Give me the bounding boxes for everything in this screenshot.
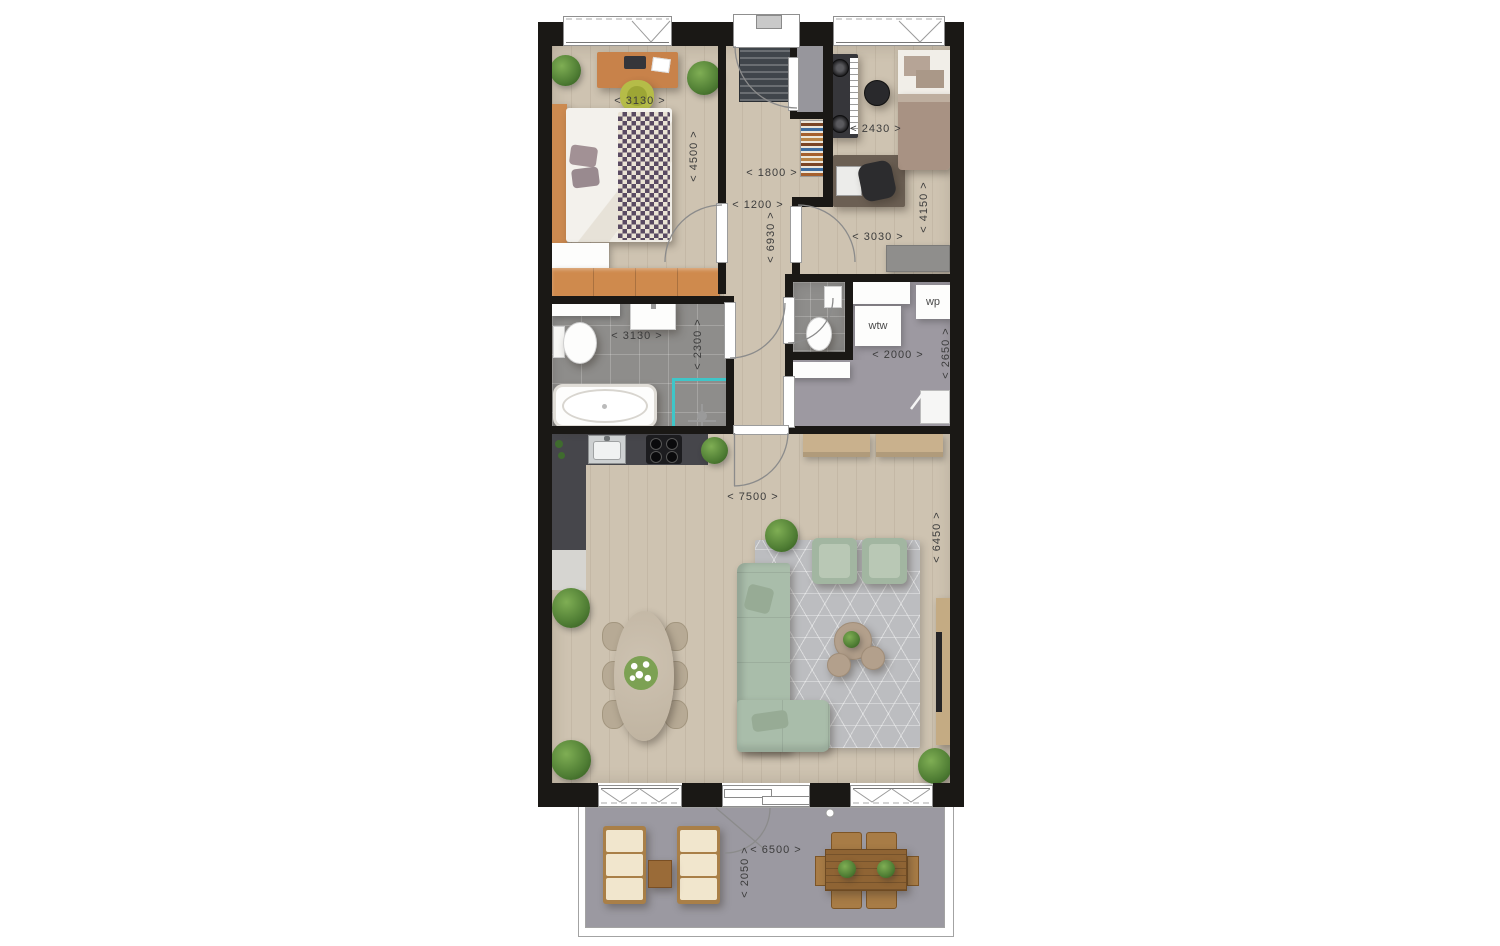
papers [651, 57, 671, 73]
kitchen-counter-side [552, 434, 586, 550]
wall [933, 783, 964, 807]
wall [945, 22, 964, 46]
dim-bedroom1-depth: < 4500 > [688, 130, 700, 181]
dim-living-width: < 7500 > [727, 491, 778, 503]
laptop [624, 56, 646, 69]
wall [810, 783, 850, 807]
wc-sink [824, 286, 842, 308]
window [563, 16, 672, 46]
door-opening [783, 376, 795, 428]
utility-counter [848, 281, 910, 304]
kitchen-mat [552, 550, 586, 590]
wp-label: wp [926, 296, 940, 308]
heat-pump-unit: wp [916, 285, 950, 319]
wall [682, 783, 722, 807]
sink-basin [593, 441, 621, 460]
potted-plant [701, 437, 728, 464]
dim-balcony-depth: < 2050 > [739, 846, 751, 897]
door-opening [783, 297, 795, 344]
lounge-cushion [680, 830, 717, 852]
wall [672, 22, 733, 46]
burner [666, 438, 678, 450]
wall [718, 46, 726, 205]
armchair-seat [819, 544, 850, 578]
dim-living-depth: < 6450 > [931, 511, 943, 562]
window [598, 785, 682, 807]
wall [800, 22, 833, 46]
dim-utility-width: < 2000 > [872, 349, 923, 361]
potted-plant [552, 588, 590, 628]
wc-shelf [788, 362, 850, 378]
tv-screen [936, 632, 942, 712]
balcony-chair [907, 856, 919, 886]
wall [552, 296, 726, 304]
wtw-label: wtw [869, 320, 888, 332]
wall [538, 783, 598, 807]
door-opening [790, 206, 802, 263]
flower-bouquet [624, 656, 658, 690]
window [833, 16, 945, 46]
lounge-cushion [680, 878, 717, 900]
faucet [604, 436, 610, 441]
heat-recovery-unit: wtw [855, 306, 901, 346]
dim-balcony-width: < 6500 > [750, 844, 801, 856]
burner [650, 451, 662, 463]
dim-utility-depth: < 2650 > [940, 327, 952, 378]
toilet [563, 322, 597, 364]
washing-machine [920, 390, 950, 424]
balcony-chair [866, 888, 897, 909]
window [850, 785, 933, 807]
wall [538, 22, 563, 46]
toilet [806, 317, 832, 351]
side-table [861, 646, 885, 670]
meter-closet-floor [797, 46, 823, 118]
lounge-cushion [680, 854, 717, 876]
lounge-cushion [606, 830, 643, 852]
dim-hall-width-upper: < 1800 > [746, 167, 797, 179]
dim-bedroom2-width: < 2430 > [850, 123, 901, 135]
wall [538, 22, 552, 807]
wall [552, 426, 734, 434]
lounge-chair [603, 826, 646, 904]
checkered-blanket [618, 112, 670, 240]
wall [950, 22, 964, 807]
speaker [831, 59, 849, 77]
dresser [552, 243, 609, 268]
dim-bathroom-depth: < 2300 > [692, 318, 704, 369]
door-opening [724, 302, 736, 359]
wall [823, 46, 833, 207]
potted-plant [551, 740, 591, 780]
table-plant [843, 631, 860, 648]
potted-plant [550, 55, 581, 86]
wardrobe [552, 268, 720, 296]
potted-plant [918, 748, 952, 784]
dim-hall-length: < 6930 > [765, 211, 777, 262]
shower-area [672, 378, 726, 428]
wall [785, 274, 793, 298]
burner [666, 451, 678, 463]
pillow [916, 70, 944, 88]
wall [788, 426, 952, 434]
wall [718, 262, 726, 294]
balcony-side-table [648, 860, 672, 888]
dim-bedroom2-depth: < 4150 > [918, 181, 930, 232]
potted-plant [687, 61, 721, 95]
wall [785, 274, 952, 282]
herb-pot [558, 452, 565, 459]
shoe-rack [800, 120, 824, 177]
pillow [569, 144, 599, 168]
door-opening [788, 57, 799, 111]
stool [864, 80, 890, 106]
potted-plant [838, 860, 856, 878]
wall [845, 282, 853, 360]
lounge-cushion [606, 854, 643, 876]
lounge-chair [677, 826, 720, 904]
sideboard [876, 434, 943, 457]
door-opening [733, 425, 789, 435]
lounge-cushion [606, 878, 643, 900]
sideboard [803, 434, 870, 457]
door-opening [716, 203, 728, 263]
speaker [831, 115, 849, 133]
wall [785, 343, 793, 377]
cooktop [646, 435, 682, 464]
sliding-door-panel [762, 796, 810, 805]
side-table [827, 653, 851, 677]
dim-bathroom-width: < 3130 > [611, 330, 662, 342]
wall [726, 358, 734, 434]
burner [650, 438, 662, 450]
pillow [571, 166, 600, 188]
entrance-door-leaf [756, 15, 782, 29]
herb-pot [555, 440, 563, 448]
bed-headboard [552, 104, 567, 262]
potted-plant [765, 519, 798, 552]
dim-bedroom1-width: < 3130 > [614, 95, 665, 107]
armchair-seat [869, 544, 900, 578]
wall [793, 352, 853, 360]
bed-blanket [898, 94, 950, 170]
bathtub-drain [602, 404, 607, 409]
dim-bedroom2-width-lower: < 3030 > [852, 231, 903, 243]
dresser [886, 245, 950, 272]
balcony-chair [831, 888, 862, 909]
entrance-doormat [739, 46, 795, 102]
dim-hall-width-lower: < 1200 > [732, 199, 783, 211]
potted-plant [877, 860, 895, 878]
floor-plan: wtw wp [0, 0, 1500, 946]
